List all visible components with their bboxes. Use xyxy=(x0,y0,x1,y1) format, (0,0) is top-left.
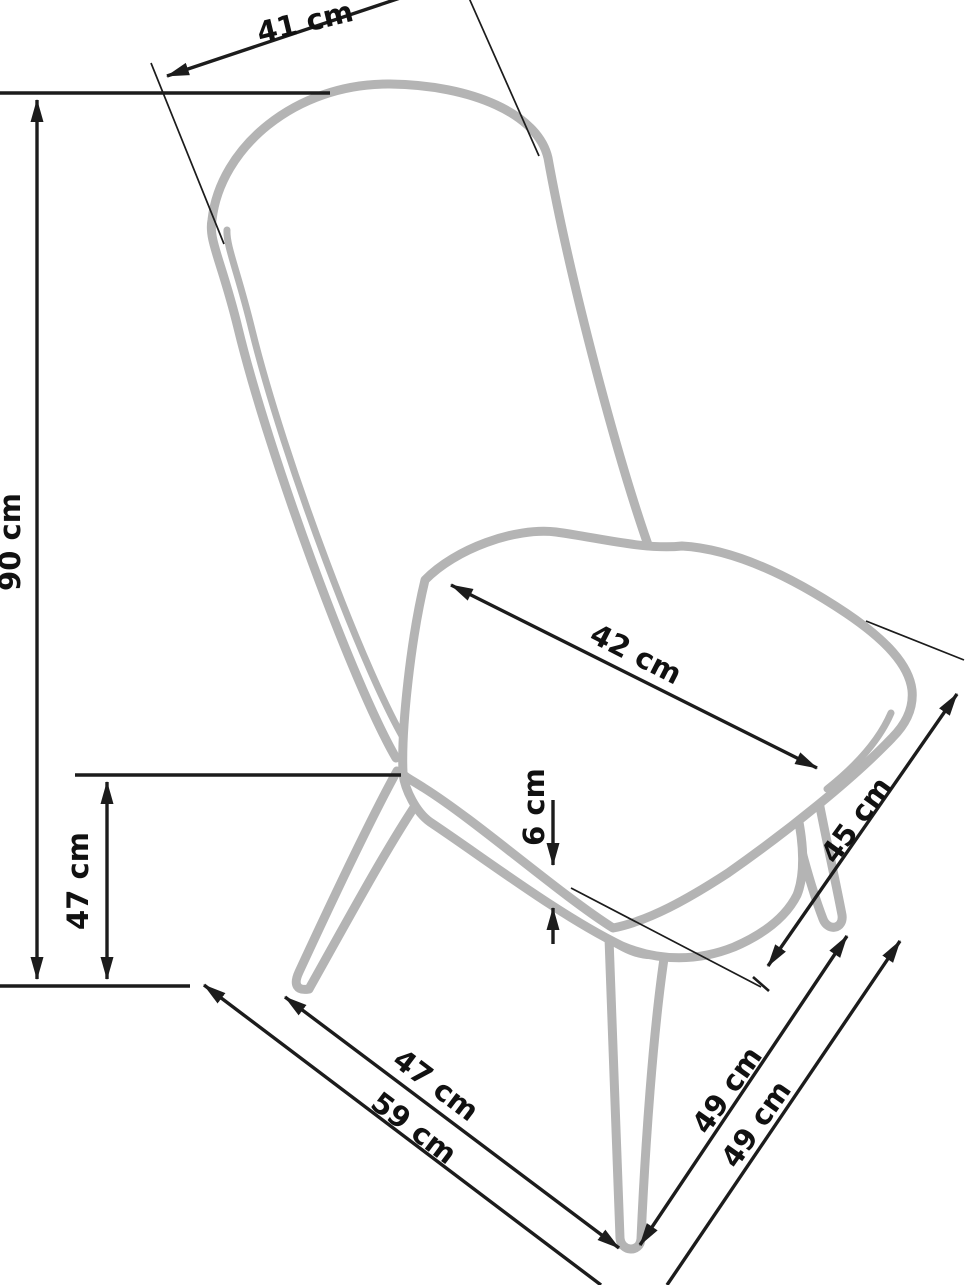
extension-line-41-left xyxy=(151,63,224,244)
label-backrest-width: 41 cm xyxy=(253,0,356,50)
extension-line-41-right xyxy=(469,0,539,156)
label-seat-height: 47 cm xyxy=(61,832,95,930)
diagram-canvas: 41 cm 90 cm 47 cm 42 cm 6 cm 45 cm 47 cm… xyxy=(0,0,970,1285)
chair-dimension-diagram: 41 cm 90 cm 47 cm 42 cm 6 cm 45 cm 47 cm… xyxy=(0,0,970,1285)
chair-front-left-leg xyxy=(296,771,421,989)
dimension-arrow-base-depth-front xyxy=(285,997,619,1248)
label-cushion-thickness: 6 cm xyxy=(517,768,551,846)
chair-backrest-seam xyxy=(227,230,408,746)
label-total-height: 90 cm xyxy=(0,493,27,591)
chair-front-right-leg xyxy=(609,938,665,1249)
